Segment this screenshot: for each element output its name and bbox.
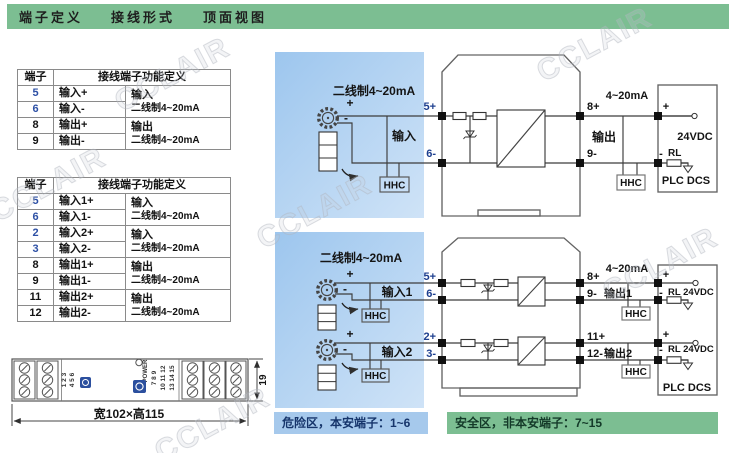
resistor (453, 113, 466, 120)
d2-source-type-label: 二线制4~20mA (320, 250, 403, 265)
t2-function: 输入1+ (54, 194, 126, 210)
d1-load-label: RL (668, 148, 681, 159)
isolation-barrier-icon (518, 337, 545, 365)
group-line1: 输出 (131, 293, 230, 306)
resistor (461, 340, 475, 347)
d2-terminal-11: 11+ (587, 331, 605, 343)
dimension-size-value: 宽102×高115 (93, 406, 165, 421)
d1-terminal-6: 6- (426, 148, 436, 160)
device-top-view: 1 2 3 4 5 6 POWER 7 8 9 10 11 12 13 14 1… (12, 359, 269, 426)
d2-hhc-label: HHC (625, 367, 647, 378)
d2-psu-minus: - (659, 344, 663, 356)
d2-input1-label: 输入1 (382, 284, 413, 299)
d1-terminal-9: 9- (587, 148, 597, 160)
resistor (494, 280, 508, 287)
d2-ch2-minus-sign: - (343, 342, 347, 356)
device-terminal-numbers-left: 4 5 6 (69, 372, 76, 387)
tab-top-view: 顶面视图 (203, 7, 267, 26)
t2-function: 输入1- (54, 210, 126, 226)
wiring-diagram-dual-channel: 二线制4~20mA + - + - 输入1 输入2 5+ 6- 2+ 3- 8+… (318, 238, 717, 396)
t1-function: 输入+ (54, 86, 126, 102)
t1-terminal-number: 9 (18, 134, 54, 150)
open-terminal-icon (693, 280, 698, 285)
d2-terminal-3: 3- (426, 348, 436, 360)
tab-wiring-form: 接线形式 (111, 7, 175, 26)
t2-group-desc: 输入 二线制4~20mA (126, 226, 231, 258)
t2-col-function: 接线端子功能定义 (54, 178, 231, 194)
d1-system-label: PLC DCS (662, 175, 710, 187)
open-terminal-icon (692, 113, 697, 118)
d2-terminal-8: 8+ (587, 271, 600, 283)
t1-group-desc: 输出 二线制4~20mA (126, 118, 231, 150)
d1-plus-sign: + (346, 96, 353, 110)
d2-ch1-plus-sign: + (346, 267, 353, 281)
t1-terminal-number: 5 (18, 86, 54, 102)
device-terminal-numbers-right: 10 11 12 (160, 365, 167, 390)
t2-function: 输出2+ (54, 290, 126, 306)
terminal-table-dual-channel: 端子 接线端子功能定义 5 输入1+ 输入 二线制4~20mA 6 输入1- 2… (17, 177, 231, 322)
terminal-table-single-channel: 端子 接线端子功能定义 5 输入+ 输入 二线制4~20mA 6 输入- 8 输… (17, 69, 231, 150)
group-line2: 二线制4~20mA (131, 242, 230, 255)
d2-terminal-12: 12- (587, 348, 603, 360)
dimension-depth: 19 (249, 359, 269, 401)
d1-terminal-8: 8+ (587, 101, 600, 113)
brand-logo (80, 377, 91, 388)
t2-function: 输入2+ (54, 226, 126, 242)
d1-output-label: 输出 (592, 129, 616, 144)
t2-col-terminal: 端子 (18, 178, 54, 194)
t2-terminal-number: 6 (18, 210, 54, 226)
group-line2: 二线制4~20mA (131, 306, 230, 319)
transmitter-body (318, 365, 336, 390)
safe-zone-label: 安全区，非本安端子：7~15 (447, 412, 718, 434)
d1-source-type-label: 二线制4~20mA (333, 83, 416, 98)
t1-terminal-number: 6 (18, 102, 54, 118)
d1-psu-plus: + (663, 101, 669, 113)
d1-hhc-label: HHC (620, 178, 642, 189)
t1-col-terminal: 端子 (18, 70, 54, 86)
device-terminal-numbers-right: 13 14 15 (169, 365, 176, 391)
t2-terminal-number: 8 (18, 258, 54, 274)
dimension-depth-value: 19 (258, 374, 269, 386)
group-line1: 输入 (131, 197, 230, 210)
isolation-barrier-icon (518, 277, 545, 306)
t2-terminal-number: 2 (18, 226, 54, 242)
t2-group-desc: 输出 二线制4~20mA (126, 290, 231, 322)
t1-function: 输出+ (54, 118, 126, 134)
d2-terminal-6: 6- (426, 288, 436, 300)
isolation-barrier-icon (497, 110, 545, 167)
load-resistor (667, 357, 681, 364)
t2-function: 输出2- (54, 306, 126, 322)
ground-icon (684, 363, 693, 370)
group-line2: 二线制4~20mA (131, 210, 230, 223)
t1-col-function: 接线端子功能定义 (54, 70, 231, 86)
d2-terminal-2: 2+ (423, 331, 436, 343)
d2-terminal-9: 9- (587, 288, 597, 300)
d2-ch1-minus-sign: - (343, 282, 347, 296)
t2-function: 输出1- (54, 274, 126, 290)
d2-terminal-5: 5+ (423, 271, 436, 283)
d2-system-label: PLC DCS (663, 382, 711, 394)
isolator-module-outline (442, 238, 580, 396)
d1-psu-minus: - (659, 148, 663, 160)
d2-hhc-label: HHC (365, 371, 387, 382)
transmitter-body (319, 132, 337, 171)
brand-logo (133, 380, 146, 393)
d2-output-current-label: 4~20mA (606, 263, 649, 275)
d2-psu-plus: + (663, 329, 669, 341)
d1-input-label: 输入 (392, 128, 416, 143)
device-terminal-numbers-right: 7 8 9 (151, 370, 158, 385)
group-line1: 输出 (131, 121, 230, 134)
tab-terminal-definition: 端子定义 (19, 7, 83, 26)
terminal-pins (438, 112, 662, 167)
t2-terminal-number: 12 (18, 306, 54, 322)
d1-hhc-right-stubs (623, 116, 637, 175)
resistor (494, 340, 508, 347)
group-line1: 输入 (131, 89, 230, 102)
group-line1: 输入 (131, 229, 230, 242)
t2-function: 输出1+ (54, 258, 126, 274)
title-bar: 端子定义 接线形式 顶面视图 (7, 4, 729, 29)
d2-output1-label: 输出1 (604, 286, 632, 300)
t2-terminal-number: 5 (18, 194, 54, 210)
group-line2: 二线制4~20mA (131, 274, 230, 287)
group-line2: 二线制4~20mA (131, 102, 230, 115)
t2-terminal-number: 11 (18, 290, 54, 306)
resistor (473, 113, 486, 120)
d1-output-current-label: 4~20mA (606, 90, 649, 102)
t1-group-desc: 输入 二线制4~20mA (126, 86, 231, 118)
d2-ch2-plus-sign: + (346, 327, 353, 341)
t2-group-desc: 输入 二线制4~20mA (126, 194, 231, 226)
d2-hhc-label: HHC (625, 309, 647, 320)
device-terminal-numbers-left: 1 2 3 (61, 372, 68, 387)
d2-output2-label: 输出2 (604, 346, 632, 360)
d1-minus-sign: - (344, 111, 348, 125)
t2-group-desc: 输出 二线制4~20mA (126, 258, 231, 290)
group-line2: 二线制4~20mA (131, 134, 230, 147)
resistor (461, 280, 475, 287)
t2-terminal-number: 3 (18, 242, 54, 258)
transmitter-body (318, 305, 336, 330)
d1-psu-voltage: 24VDC (677, 131, 713, 143)
power-label: POWER (143, 359, 149, 382)
d1-hhc-label: HHC (384, 181, 406, 192)
power-led (136, 359, 142, 365)
ground-icon (684, 166, 693, 173)
t2-function: 输入2- (54, 242, 126, 258)
load-resistor (667, 160, 681, 167)
hazard-zone-label: 危险区，本安端子：1~6 (274, 412, 428, 434)
t1-function: 输出- (54, 134, 126, 150)
t1-function: 输入- (54, 102, 126, 118)
page: 二线制4~20mA + - 输入 5+ 6- 8+ 9- 输出 4~20mA H… (0, 0, 736, 453)
d1-terminal-5: 5+ (423, 101, 436, 113)
group-line1: 输出 (131, 261, 230, 274)
d2-load-voltage-label: RL 24VDC (668, 344, 714, 355)
t1-terminal-number: 8 (18, 118, 54, 134)
d2-hhc-label: HHC (365, 311, 387, 322)
d2-psu-minus: - (659, 287, 663, 299)
d2-input2-label: 输入2 (382, 344, 413, 359)
d2-psu-plus: + (663, 269, 669, 281)
t2-terminal-number: 9 (18, 274, 54, 290)
ground-icon (684, 303, 693, 310)
dimension-width: 宽102×高115 (12, 404, 248, 426)
d2-load-voltage-label: RL 24VDC (668, 287, 714, 298)
